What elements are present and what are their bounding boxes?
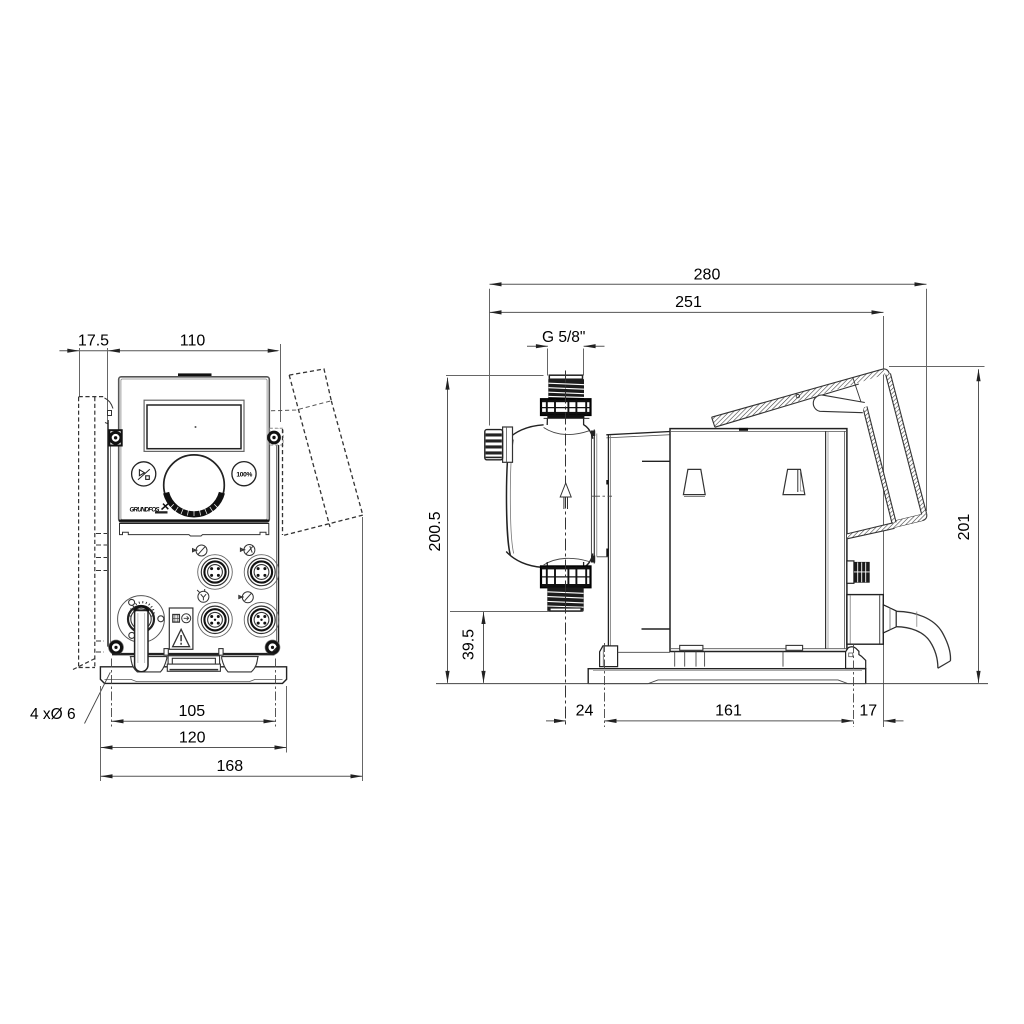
svg-text:280: 280 — [694, 267, 721, 284]
svg-text:GRUNDFOS: GRUNDFOS — [130, 507, 160, 514]
svg-text:120: 120 — [179, 730, 206, 747]
svg-text:24: 24 — [576, 702, 594, 719]
svg-text:4 xØ 6: 4 xØ 6 — [30, 706, 76, 723]
svg-text:17: 17 — [859, 702, 877, 719]
svg-text:100%: 100% — [236, 472, 252, 479]
svg-text:168: 168 — [216, 758, 243, 775]
svg-text:161: 161 — [715, 702, 742, 719]
svg-text:251: 251 — [675, 294, 702, 311]
svg-text:200.5: 200.5 — [427, 511, 444, 551]
svg-text:G 5/8": G 5/8" — [542, 329, 585, 346]
svg-text:17.5: 17.5 — [78, 333, 109, 350]
svg-text:39.5: 39.5 — [461, 629, 478, 660]
svg-text:110: 110 — [180, 333, 206, 350]
svg-text:105: 105 — [178, 703, 205, 720]
svg-text:201: 201 — [956, 514, 973, 541]
